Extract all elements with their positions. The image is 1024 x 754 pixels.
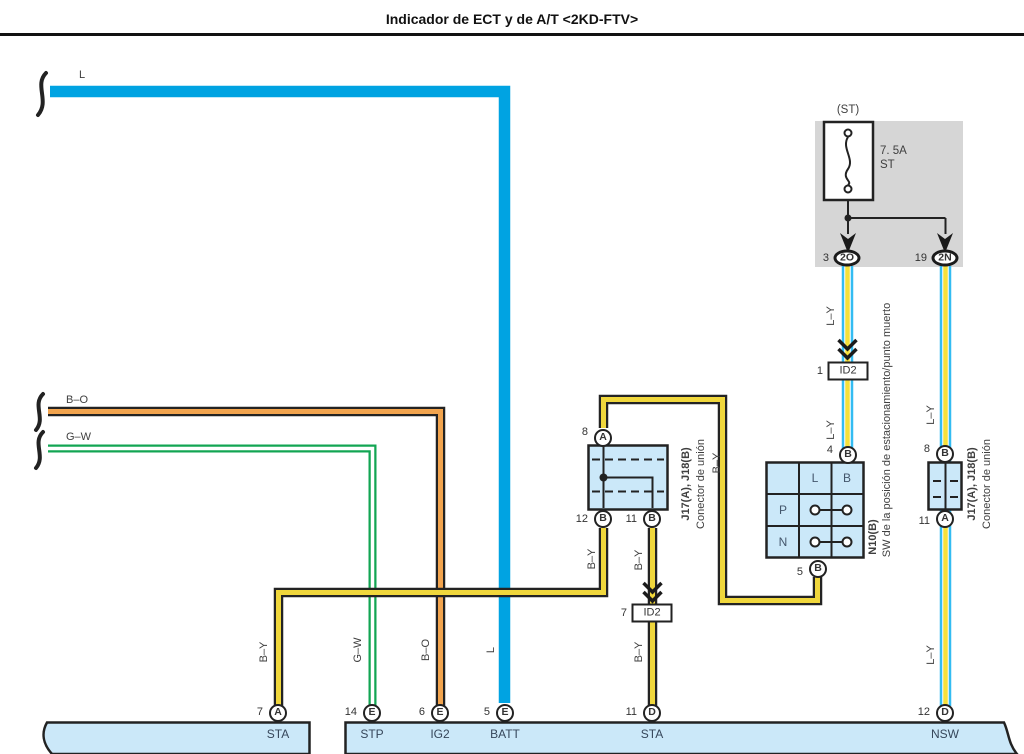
pin-number: 5	[484, 706, 490, 718]
n10-name: N10(B)	[867, 519, 879, 554]
pin-circle: D	[936, 704, 954, 722]
terminal-signal: IG2	[430, 727, 449, 741]
terminal-signal: BATT	[490, 727, 520, 741]
fuse-rating: 7. 5A	[880, 145, 907, 157]
contact-icon	[811, 506, 820, 515]
pin-number: 12	[576, 513, 588, 525]
n10-cell-b: B	[843, 471, 851, 485]
id2-pin: 7	[621, 607, 627, 619]
wire-label-l-y: L–Y	[825, 306, 837, 326]
socket-2o: 2O	[834, 250, 861, 267]
wire-label-b-y: B–Y	[633, 550, 645, 571]
terminal-signal: STA	[641, 727, 663, 741]
pin-number: 12	[918, 706, 930, 718]
id2-pin: 1	[817, 365, 823, 377]
junction-right-name: J17(A), J18(B)	[966, 447, 978, 520]
terminal-signal: STP	[360, 727, 383, 741]
fuse-name: ST	[880, 159, 895, 171]
pin-circle: E	[496, 704, 514, 722]
wire-g-w	[48, 449, 373, 707]
contact-icon	[843, 538, 852, 547]
pin-circle: B	[839, 446, 857, 464]
socket-2n: 2N	[932, 250, 959, 267]
socket-2o-pin: 3	[823, 252, 829, 264]
fuse-block	[815, 121, 963, 267]
n10-desc: SW de la posición de estacionamiento/pun…	[881, 303, 893, 557]
pin-number: 8	[924, 443, 930, 455]
pin-circle: A	[936, 510, 954, 528]
pin-circle: B	[936, 445, 954, 463]
id2-connector: ID2	[632, 604, 673, 623]
id2-connector: ID2	[828, 362, 869, 381]
pin-circle: E	[363, 704, 381, 722]
pin-number: 5	[797, 566, 803, 578]
pin-number: 4	[827, 444, 833, 456]
pin-circle: B	[809, 560, 827, 578]
junction-mid-name: J17(A), J18(B)	[680, 447, 692, 520]
wire-label-b-y: B–Y	[633, 642, 645, 663]
junction-dot	[600, 474, 608, 482]
pin-number: 7	[257, 706, 263, 718]
junction-right-box	[929, 463, 962, 510]
pin-number: 11	[919, 515, 930, 527]
wiring-diagram-page: Indicador de ECT y de A/T <2KD-FTV>	[0, 0, 1024, 754]
pin-circle: D	[643, 704, 661, 722]
n10-cell-l: L	[812, 471, 819, 485]
pin-circle: B	[594, 510, 612, 528]
fuse-title: (ST)	[837, 104, 859, 116]
pin-number: 14	[345, 706, 357, 718]
junction-dot	[845, 215, 852, 222]
pin-number: 6	[419, 706, 425, 718]
junction-right-desc: Conector de unión	[981, 439, 993, 529]
pin-circle: B	[643, 510, 661, 528]
pin-circle: A	[269, 704, 287, 722]
bottom-boxes	[44, 723, 1017, 754]
wire-label-g-w: G–W	[66, 431, 91, 443]
n10-cell-n: N	[779, 535, 788, 549]
junction-mid-box	[589, 446, 668, 510]
wire-label-g-w: G–W	[352, 637, 364, 662]
pin-circle: E	[431, 704, 449, 722]
terminal-signal: NSW	[931, 727, 959, 741]
wire-label-l-y: L–Y	[825, 420, 837, 440]
contact-icon	[843, 506, 852, 515]
wire-label-b-y: B–Y	[258, 642, 270, 663]
pin-number: 11	[626, 706, 637, 718]
diagram-canvas	[0, 0, 1024, 754]
wire-label-l: L	[485, 647, 497, 653]
pin-number: 8	[582, 426, 588, 438]
wire-label-b-y: B–Y	[711, 453, 723, 474]
wire-label-b-o: B–O	[66, 394, 88, 406]
wire-label-b-o: B–O	[420, 639, 432, 661]
junction-mid-desc: Conector de unión	[695, 439, 707, 529]
pin-number: 11	[626, 513, 637, 525]
contact-icon	[811, 538, 820, 547]
wire-label-l-y: L–Y	[925, 405, 937, 425]
continuation-marks	[36, 73, 46, 468]
wire-b-o	[48, 412, 441, 707]
terminal-signal: STA	[267, 727, 289, 741]
socket-2n-pin: 19	[915, 252, 927, 264]
wire-label-l-y: L–Y	[925, 645, 937, 665]
wire-label-b-y: B–Y	[586, 549, 598, 570]
pin-circle: A	[594, 429, 612, 447]
n10-cell-p: P	[779, 503, 787, 517]
wire-label-l: L	[79, 69, 85, 81]
